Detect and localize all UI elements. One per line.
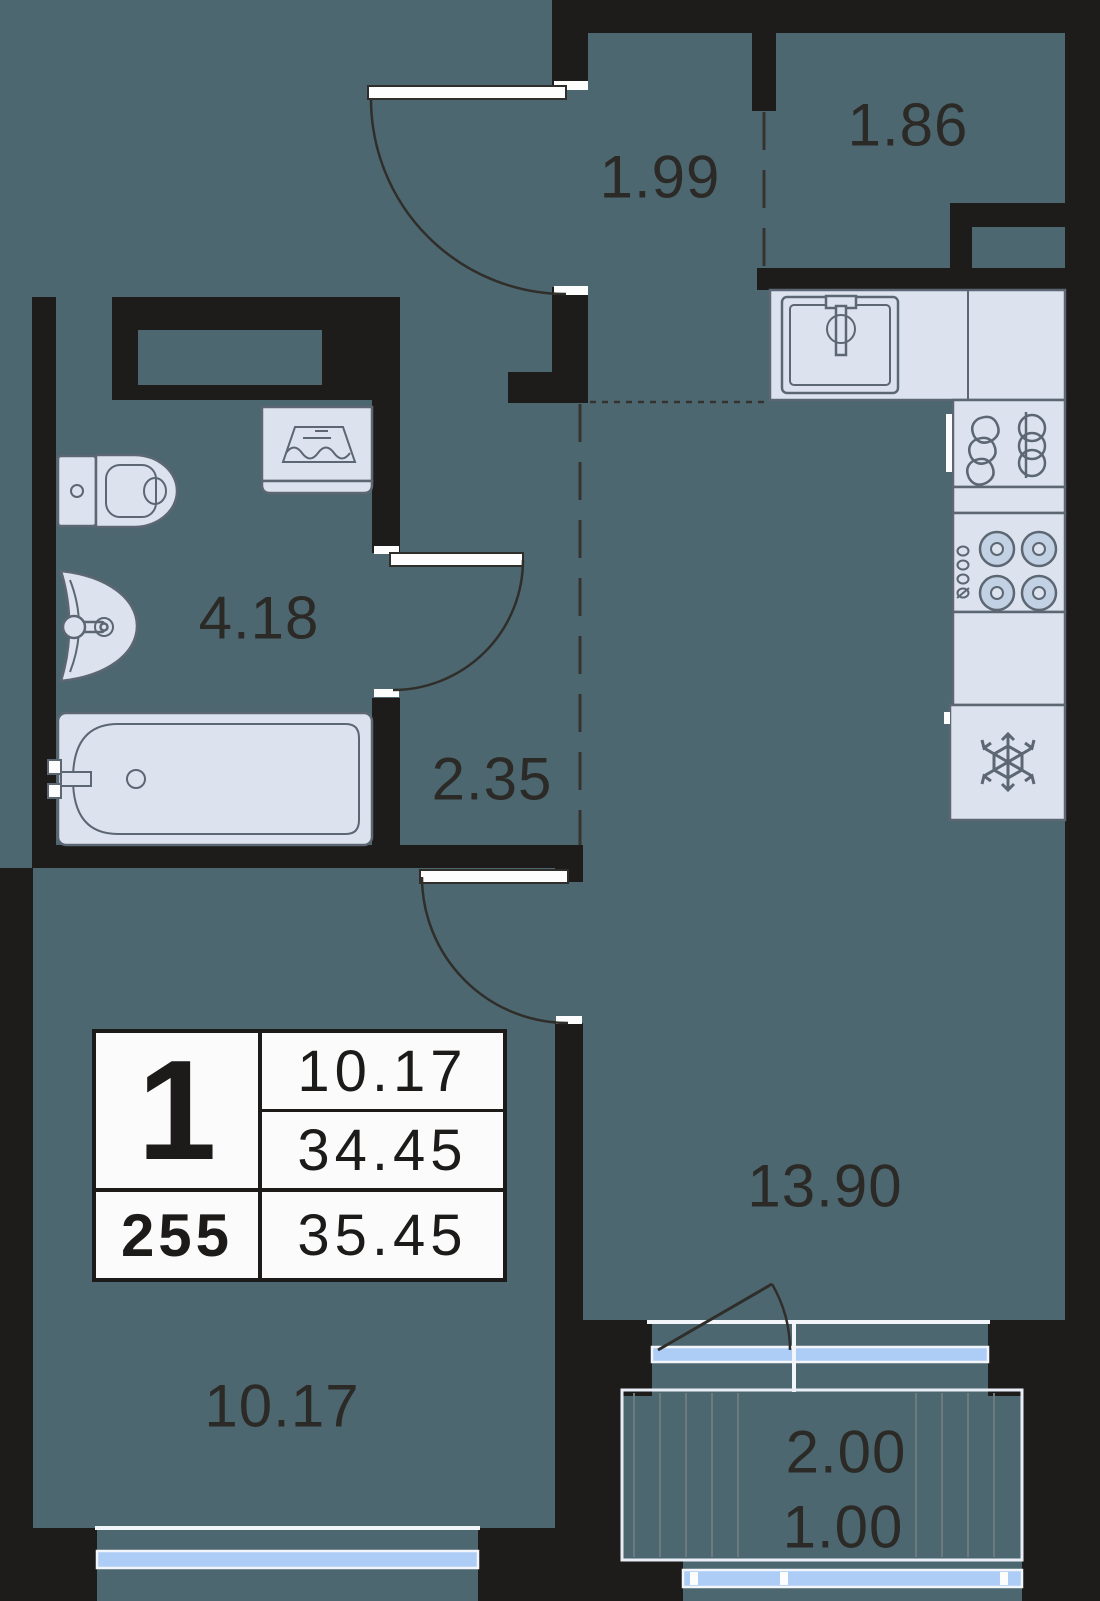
bathroom-area-label: 4.18 [199,584,320,653]
bathroom-door [390,553,523,690]
area-cell: 34.45 [262,1112,503,1192]
floorplan-canvas: 1.99 1.86 4.18 2.35 13.90 10.17 2.00 1.0… [0,0,1100,1601]
bathtub-icon [48,713,372,845]
kitchen-sink-icon [770,290,1065,400]
bedroom-window-glass [97,1551,478,1568]
living-window-frame [647,1320,990,1324]
bedroom-area-label: 10.17 [204,1372,359,1441]
kitchen-counter-strip-2 [953,612,1065,705]
total-area-cell: 35.45 [262,1192,503,1278]
balcony-glazing [683,1570,1022,1587]
living-area-cell: 10.17 [262,1033,503,1112]
corridor-area-label: 2.35 [432,745,553,814]
balcony-door [658,1284,790,1350]
unit-number-cell: 255 [96,1192,262,1278]
balcony-area-label: 2.00 [786,1418,907,1487]
stove-icon [953,513,1065,612]
bedroom-door [420,870,568,1023]
hallway-area-label: 1.99 [600,143,721,212]
toilet-icon [58,455,177,527]
kitchen-living-area-label: 13.90 [747,1152,902,1221]
washing-machine-icon [262,407,372,493]
bedroom-window-frame [95,1526,480,1530]
kitchen-counter-strip [953,487,1065,513]
unit-summary-table: 1 10.17 34.45 255 35.45 [92,1029,507,1282]
fridge-snowflake-icon [944,705,1065,820]
rooms-count-cell: 1 [96,1033,262,1192]
dish-dryer-icon [946,400,1065,487]
living-window-glass [652,1347,988,1362]
kitchen-fixtures [770,290,1065,820]
window-mullion [792,1322,796,1392]
zone-divider-lines [580,112,768,845]
wash-basin-icon [61,571,137,681]
entry-door [368,86,566,294]
storage-area-label: 1.86 [848,91,969,160]
balcony-reduced-area-label: 1.00 [783,1493,904,1562]
